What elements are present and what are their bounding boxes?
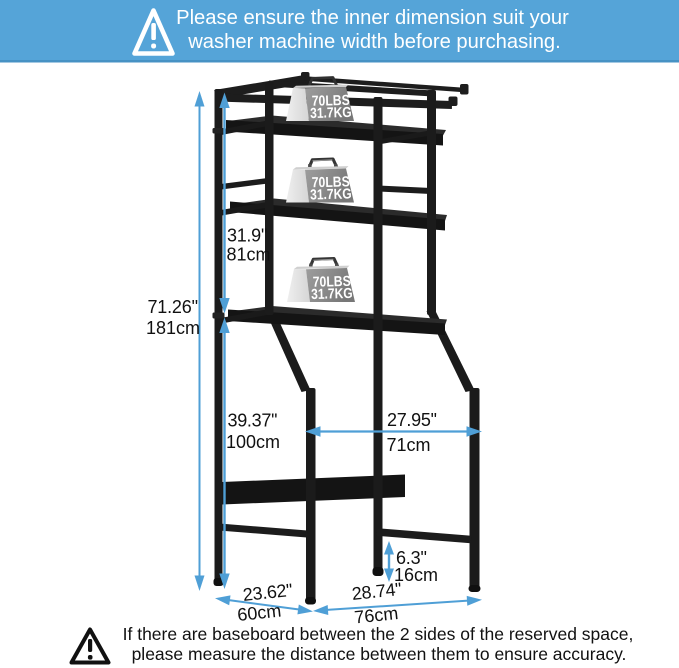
svg-text:31.7KG: 31.7KG [310, 105, 352, 122]
svg-text:31.7KG: 31.7KG [311, 286, 353, 303]
svg-text:please measure the distance be: please measure the distance between them… [132, 644, 627, 664]
svg-text:39.37'': 39.37'' [228, 411, 278, 431]
svg-text:71.26'': 71.26'' [148, 297, 199, 317]
svg-text:27.95'': 27.95'' [387, 410, 437, 430]
svg-text:100cm: 100cm [226, 432, 280, 452]
svg-text:washer machine width before pu: washer machine width before purchasing. [187, 31, 561, 53]
svg-text:31.7KG: 31.7KG [310, 186, 352, 203]
svg-text:If there are baseboard between: If there are baseboard between the 2 sid… [123, 624, 634, 644]
svg-text:71cm: 71cm [387, 435, 431, 455]
svg-text:181cm: 181cm [146, 318, 200, 338]
svg-text:31.9'': 31.9'' [227, 226, 267, 246]
svg-text:81cm: 81cm [227, 245, 271, 265]
svg-text:Please ensure the inner dimens: Please ensure the inner dimension suit y… [176, 7, 569, 29]
